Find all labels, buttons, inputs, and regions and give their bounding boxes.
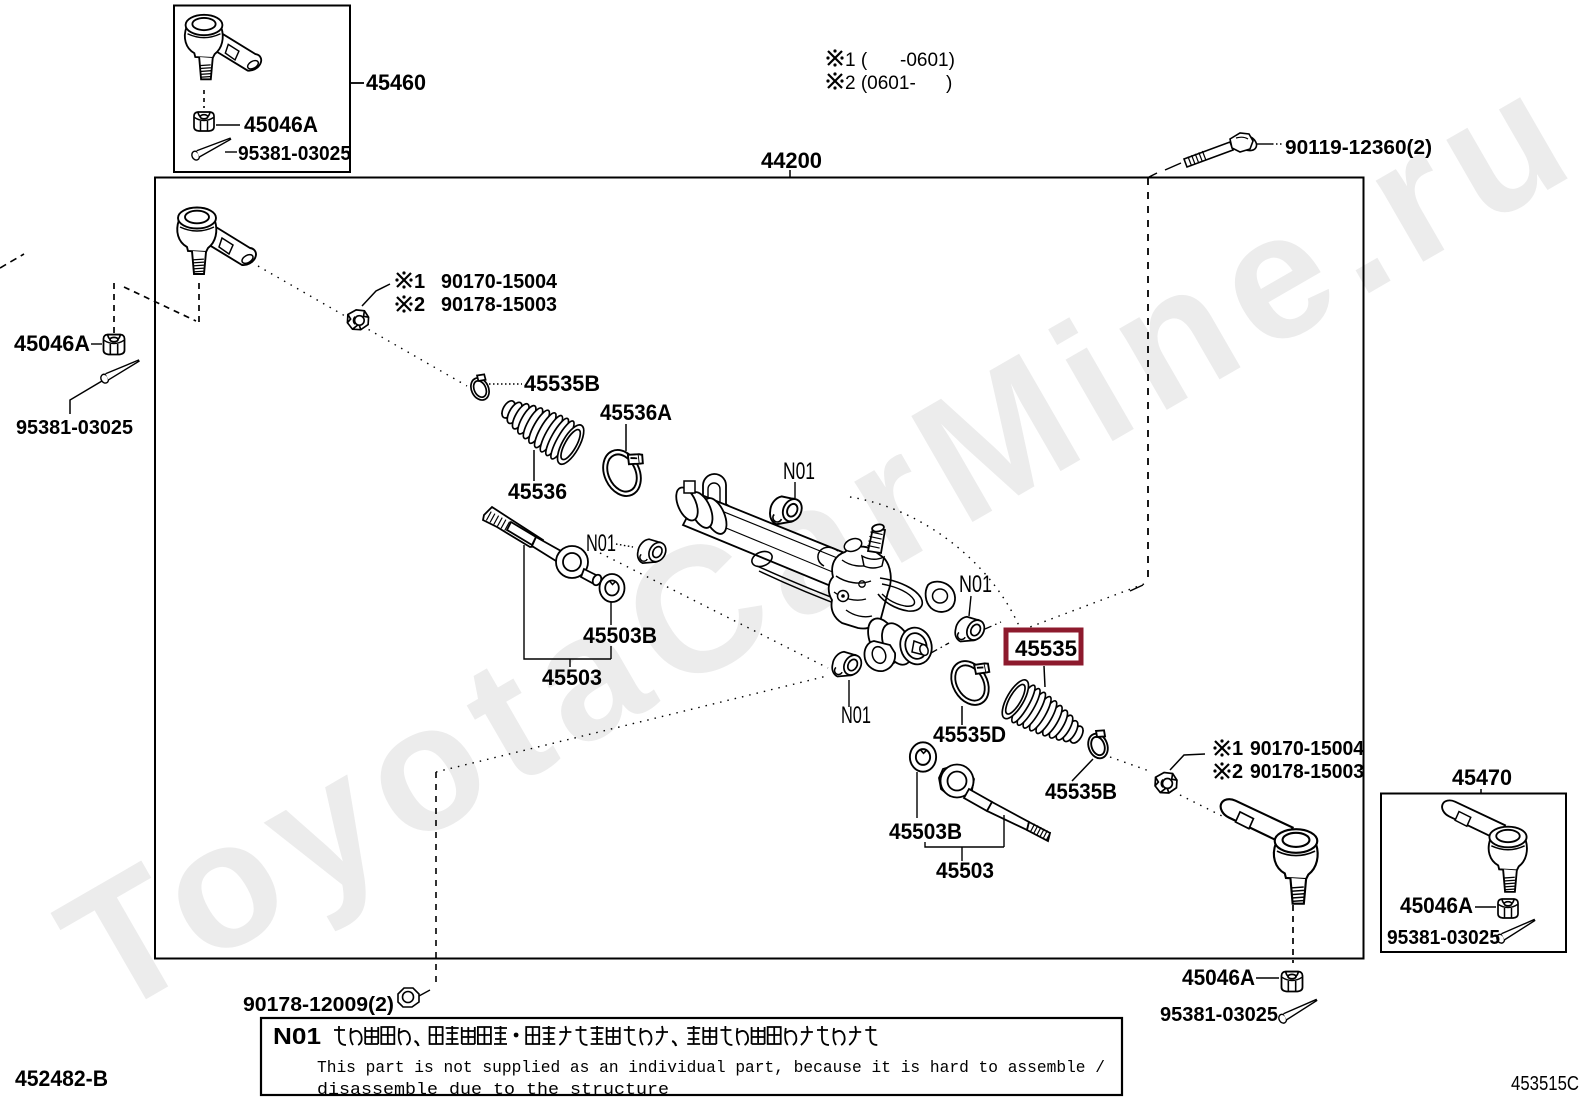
svg-text:N01: N01 bbox=[959, 571, 992, 598]
svg-text:45046A: 45046A bbox=[1400, 893, 1473, 918]
svg-text:95381-03025: 95381-03025 bbox=[1387, 927, 1500, 949]
svg-text:): ) bbox=[946, 73, 952, 94]
svg-text:90170-15004: 90170-15004 bbox=[1250, 738, 1365, 760]
svg-text:90119-12360(2): 90119-12360(2) bbox=[1285, 137, 1432, 159]
svg-text:45503B: 45503B bbox=[889, 819, 962, 844]
svg-text:95381-03025: 95381-03025 bbox=[16, 417, 133, 439]
svg-text:N01: N01 bbox=[841, 702, 871, 729]
svg-text:45470: 45470 bbox=[1452, 765, 1512, 790]
svg-text:disassemble due to the structu: disassemble due to the structure bbox=[317, 1081, 669, 1099]
svg-text:45046A: 45046A bbox=[14, 331, 90, 356]
svg-text:45535: 45535 bbox=[1015, 636, 1077, 661]
svg-text:90178-15003: 90178-15003 bbox=[441, 294, 557, 316]
svg-text:45536A: 45536A bbox=[600, 400, 672, 425]
svg-text:45536: 45536 bbox=[508, 479, 567, 504]
svg-text:This part is not supplied as a: This part is not supplied as an individu… bbox=[317, 1059, 1105, 1078]
svg-text:1: 1 bbox=[1232, 738, 1243, 760]
svg-text:45503: 45503 bbox=[936, 858, 994, 883]
svg-text:2 (0601-: 2 (0601- bbox=[845, 73, 916, 94]
svg-text:44200: 44200 bbox=[761, 148, 822, 173]
svg-text:2: 2 bbox=[1232, 761, 1243, 783]
svg-text:45535D: 45535D bbox=[933, 722, 1006, 747]
svg-text:N01: N01 bbox=[783, 458, 815, 485]
svg-text:45046A: 45046A bbox=[1182, 965, 1255, 990]
svg-text:453515C: 453515C bbox=[1511, 1073, 1579, 1095]
svg-text:1: 1 bbox=[414, 271, 425, 293]
svg-text:45503: 45503 bbox=[542, 665, 602, 690]
svg-text:45535B: 45535B bbox=[1045, 779, 1117, 804]
svg-text:452482-B: 452482-B bbox=[15, 1066, 108, 1091]
svg-text:45503B: 45503B bbox=[583, 623, 657, 648]
svg-text:-0601): -0601) bbox=[900, 50, 955, 71]
svg-text:90170-15004: 90170-15004 bbox=[441, 271, 558, 293]
svg-text:2: 2 bbox=[414, 294, 425, 316]
svg-text:90178-12009(2): 90178-12009(2) bbox=[243, 994, 394, 1016]
svg-text:N01: N01 bbox=[273, 1023, 321, 1049]
svg-text:95381-03025: 95381-03025 bbox=[238, 143, 351, 165]
svg-text:90178-15003: 90178-15003 bbox=[1250, 761, 1364, 783]
svg-text:1 (: 1 ( bbox=[845, 50, 868, 71]
svg-text:45460: 45460 bbox=[366, 70, 426, 95]
svg-text:45046A: 45046A bbox=[244, 112, 318, 137]
svg-text:95381-03025: 95381-03025 bbox=[1160, 1004, 1278, 1026]
svg-text:45535B: 45535B bbox=[524, 371, 600, 396]
